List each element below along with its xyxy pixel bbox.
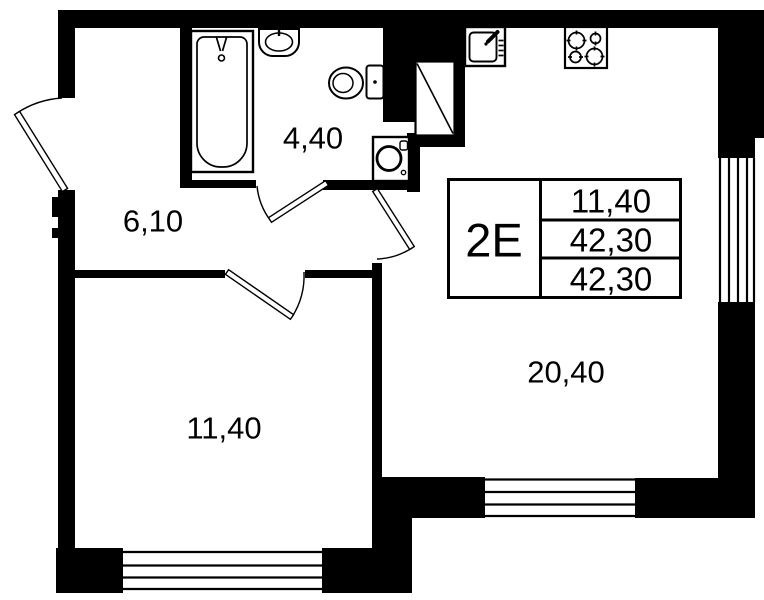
bathroom-door-leaf bbox=[269, 181, 329, 223]
floor-plan: 2Е 11,40 42,30 42,30 6,10 4,40 11,40 20,… bbox=[0, 0, 764, 600]
wall-left-upper bbox=[58, 10, 75, 98]
wall-left-lower bbox=[58, 190, 75, 548]
wash-basin bbox=[259, 28, 299, 56]
wall-bottom-bedroom-right bbox=[322, 548, 412, 593]
bathroom-door bbox=[257, 181, 329, 223]
table-total-area-with-balcony: 42,30 bbox=[570, 261, 653, 298]
wall-bedroom-top-right bbox=[305, 270, 378, 278]
living-room-window bbox=[485, 480, 635, 517]
entrance-door-leaf bbox=[15, 111, 68, 191]
wall-right-upper bbox=[718, 28, 755, 158]
table-total-area: 42,30 bbox=[570, 222, 653, 259]
wall-bottom-living-right bbox=[635, 478, 755, 518]
unit-code-label: 2Е bbox=[465, 214, 523, 267]
toilet bbox=[329, 66, 384, 99]
bedroom-door bbox=[225, 270, 304, 320]
bedroom-area-label: 11,40 bbox=[186, 411, 261, 446]
wall-step bbox=[378, 517, 412, 553]
wall-left-nub-1 bbox=[52, 197, 58, 217]
bathroom-area-label: 4,40 bbox=[283, 121, 343, 156]
wall-bottom-living-left bbox=[378, 477, 485, 518]
bedroom-door-leaf bbox=[225, 270, 293, 320]
hallway-area-label: 6,10 bbox=[123, 204, 183, 239]
unit-info-table: 2Е 11,40 42,30 42,30 bbox=[449, 180, 681, 298]
ventilation-shaft bbox=[416, 62, 455, 136]
living-room-door-arc bbox=[377, 248, 412, 259]
wall-shaft-top-chunk bbox=[390, 28, 465, 63]
bedroom-door-arc bbox=[292, 272, 304, 317]
bathtub bbox=[191, 31, 253, 172]
walls bbox=[52, 10, 764, 593]
wall-divider-vertical bbox=[372, 263, 382, 548]
wall-bottom-bedroom-left bbox=[56, 548, 123, 593]
stove bbox=[565, 27, 607, 68]
wall-bedroom-top-left bbox=[75, 270, 225, 278]
living-room-door bbox=[373, 189, 415, 260]
living-kitchen-area-label: 20,40 bbox=[527, 355, 605, 390]
wall-left-nub-2 bbox=[52, 228, 58, 238]
entrance-door-arc bbox=[17, 98, 62, 113]
table-living-area: 11,40 bbox=[571, 183, 651, 220]
entrance-door bbox=[15, 98, 68, 192]
wall-top bbox=[58, 10, 755, 28]
right-side-window bbox=[720, 158, 754, 302]
bedroom-window bbox=[120, 552, 322, 589]
bathroom-door-arc bbox=[257, 186, 270, 220]
washing-machine bbox=[373, 137, 409, 181]
floor-plan-canvas: 2Е 11,40 42,30 42,30 6,10 4,40 11,40 20,… bbox=[0, 0, 764, 600]
wall-bathroom-bottom-left bbox=[180, 180, 256, 188]
living-room-door-leaf bbox=[373, 189, 415, 250]
kitchen-sink bbox=[465, 27, 505, 66]
